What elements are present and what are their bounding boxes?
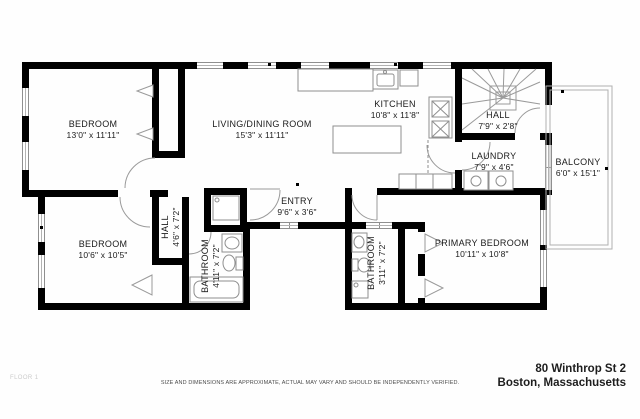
- room-dims: 4'6" x 7'2": [171, 207, 182, 246]
- room-label-hall-lower: HALL 4'6" x 7'2": [160, 207, 182, 246]
- room-dims: 7'9" x 2'8": [478, 121, 517, 132]
- address-line-1: 80 Winthrop St 2: [498, 363, 626, 377]
- room-name: LIVING/DINING ROOM: [212, 119, 311, 130]
- room-name: LAUNDRY: [472, 151, 517, 162]
- bedroom1-door-arc: [125, 158, 155, 188]
- room-label-bathroom-2: BATHROOM 3'11" x 7'2": [366, 236, 388, 290]
- primary-suite-door-arc: [352, 195, 377, 220]
- room-dims: 4'11" x 7'2": [211, 239, 222, 293]
- plan-detail-layer: [0, 0, 640, 419]
- toilet: [223, 255, 235, 271]
- washer-dryer: [464, 171, 513, 190]
- room-label-balcony: BALCONY 6'0" x 15'1": [555, 157, 600, 179]
- floor-plan-canvas: BEDROOM 13'0" x 11'11" LIVING/DINING ROO…: [0, 0, 640, 419]
- hall-balcony-door-arc: [515, 108, 540, 133]
- kitchen-island: [333, 126, 401, 153]
- room-name: BALCONY: [555, 157, 600, 168]
- room-label-kitchen: KITCHEN 10'8" x 11'8": [371, 99, 420, 121]
- property-address: 80 Winthrop St 2 Boston, Massachusetts: [498, 363, 626, 390]
- room-dims: 7'9" x 4'6": [472, 162, 517, 173]
- room-label-hall-upper: HALL 7'9" x 2'8": [478, 110, 517, 132]
- room-label-entry: ENTRY 9'6" x 3'6": [277, 196, 316, 218]
- kitchen-cabinets: [399, 174, 452, 189]
- room-label-laundry: LAUNDRY 7'9" x 4'6": [472, 151, 517, 173]
- room-name: BEDROOM: [78, 239, 127, 250]
- room-dims: 3'11" x 7'2": [377, 236, 388, 290]
- room-dims: 13'0" x 11'11": [67, 130, 120, 141]
- room-name: BEDROOM: [67, 119, 120, 130]
- bedroom2-door-arc: [120, 197, 150, 227]
- room-name: HALL: [478, 110, 517, 121]
- room-name: BATHROOM: [200, 239, 211, 293]
- kitchen-appliance: [400, 70, 418, 86]
- room-dims: 15'3" x 11'11": [212, 130, 311, 141]
- address-line-2: Boston, Massachusetts: [498, 377, 626, 391]
- room-label-bedroom-1: BEDROOM 13'0" x 11'11": [67, 119, 120, 141]
- room-name: BATHROOM: [366, 236, 377, 290]
- room-dims: 10'6" x 10'5": [78, 250, 127, 261]
- room-label-living-dining: LIVING/DINING ROOM 15'3" x 11'11": [212, 119, 311, 141]
- room-dims: 10'11" x 10'8": [435, 249, 529, 260]
- room-dims: 6'0" x 15'1": [555, 168, 600, 179]
- room-name: KITCHEN: [371, 99, 420, 110]
- kitchen-laundry-door-arc: [427, 145, 455, 173]
- room-name: ENTRY: [277, 196, 316, 207]
- room-name: PRIMARY BEDROOM: [435, 238, 529, 249]
- room-name: HALL: [160, 207, 171, 246]
- room-label-primary-bedroom: PRIMARY BEDROOM 10'11" x 10'8": [435, 238, 529, 260]
- room-label-bathroom-1: BATHROOM 4'11" x 7'2": [200, 239, 222, 293]
- kitchen-counter: [298, 69, 373, 91]
- room-dims: 9'6" x 3'6": [277, 207, 316, 218]
- room-label-bedroom-2: BEDROOM 10'6" x 10'5": [78, 239, 127, 261]
- kitchen-fixtures: [298, 69, 452, 189]
- entry-door-arc: [250, 189, 280, 220]
- room-dims: 10'8" x 11'8": [371, 110, 420, 121]
- toilet-tank: [352, 259, 358, 271]
- toilet-tank: [236, 257, 243, 270]
